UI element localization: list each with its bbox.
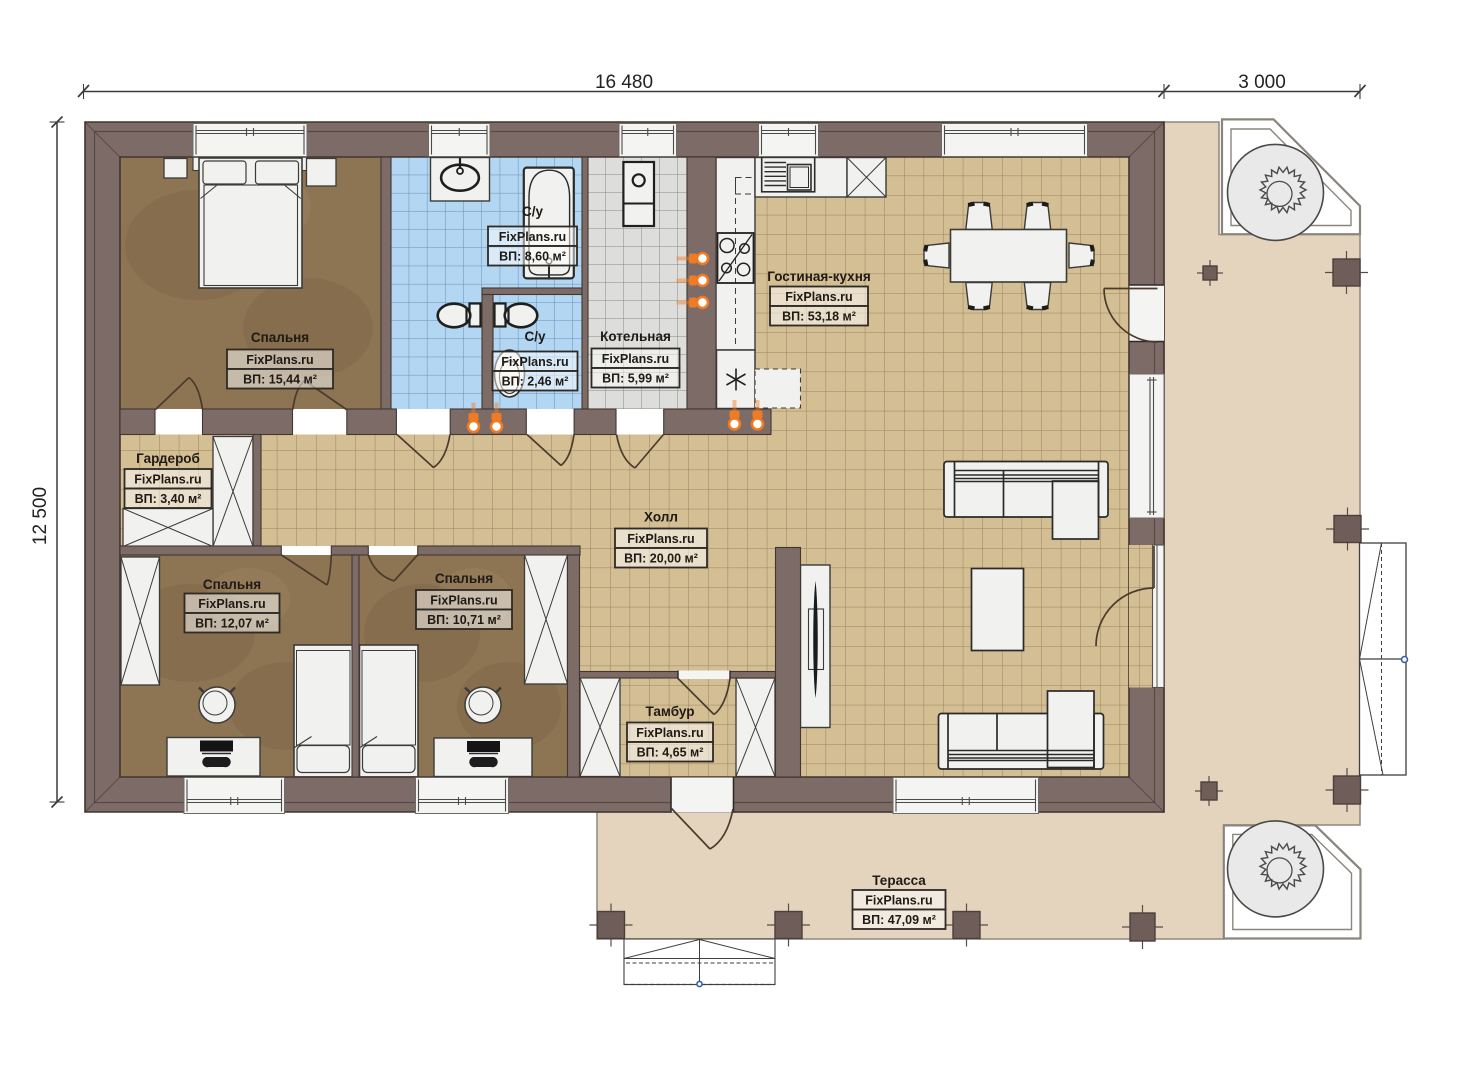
svg-text:FixPlans.ru: FixPlans.ru [602, 352, 669, 366]
svg-text:ВП: 10,71 м²: ВП: 10,71 м² [427, 613, 501, 627]
svg-text:ВП: 4,65 м²: ВП: 4,65 м² [637, 745, 704, 759]
svg-text:Спальня: Спальня [251, 330, 309, 345]
svg-text:16 480: 16 480 [595, 72, 653, 93]
svg-text:С/у: С/у [524, 329, 546, 344]
svg-text:ВП: 47,09 м²: ВП: 47,09 м² [862, 913, 936, 927]
svg-text:С/у: С/у [522, 204, 544, 219]
svg-text:Спальня: Спальня [435, 571, 493, 586]
svg-text:FixPlans.ru: FixPlans.ru [501, 355, 568, 369]
svg-text:Тамбур: Тамбур [646, 704, 695, 719]
svg-text:FixPlans.ru: FixPlans.ru [499, 230, 566, 244]
svg-text:FixPlans.ru: FixPlans.ru [134, 472, 201, 486]
svg-text:Холл: Холл [644, 510, 678, 525]
svg-text:FixPlans.ru: FixPlans.ru [865, 893, 932, 907]
svg-text:FixPlans.ru: FixPlans.ru [246, 353, 313, 367]
svg-text:ВП: 3,40 м²: ВП: 3,40 м² [135, 492, 202, 506]
svg-text:ВП: 12,07 м²: ВП: 12,07 м² [195, 616, 269, 630]
svg-text:Терасса: Терасса [872, 873, 926, 888]
svg-text:Котельная: Котельная [600, 329, 671, 344]
svg-text:3 000: 3 000 [1238, 72, 1286, 93]
svg-text:ВП: 15,44 м²: ВП: 15,44 м² [243, 372, 317, 386]
svg-text:ВП: 2,46 м²: ВП: 2,46 м² [502, 374, 569, 388]
svg-text:Гостиная-кухня: Гостиная-кухня [767, 269, 870, 284]
svg-text:Гардероб: Гардероб [136, 451, 200, 466]
svg-text:FixPlans.ru: FixPlans.ru [785, 290, 852, 304]
svg-text:ВП: 5,99 м²: ВП: 5,99 м² [602, 371, 669, 385]
svg-text:ВП: 20,00 м²: ВП: 20,00 м² [624, 551, 698, 565]
svg-text:FixPlans.ru: FixPlans.ru [627, 532, 694, 546]
svg-text:Спальня: Спальня [203, 577, 261, 592]
svg-text:FixPlans.ru: FixPlans.ru [198, 597, 265, 611]
svg-text:FixPlans.ru: FixPlans.ru [430, 593, 497, 607]
svg-text:ВП: 8,60 м²: ВП: 8,60 м² [499, 249, 566, 263]
svg-text:12 500: 12 500 [30, 487, 51, 545]
svg-text:ВП: 53,18 м²: ВП: 53,18 м² [782, 309, 856, 323]
svg-text:FixPlans.ru: FixPlans.ru [636, 726, 703, 740]
